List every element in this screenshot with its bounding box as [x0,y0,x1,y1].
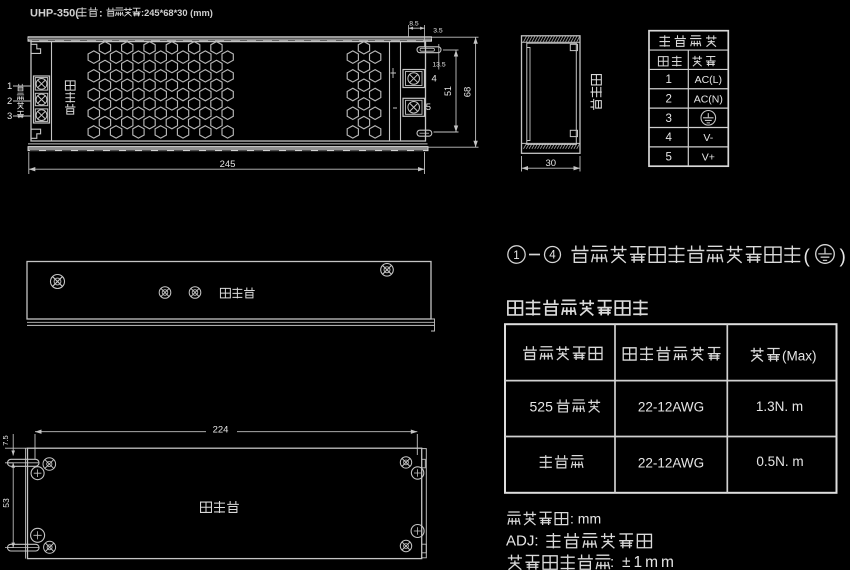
svg-text:2: 2 [7,96,12,107]
svg-text:V+: V+ [702,152,715,164]
svg-text:30: 30 [546,158,557,169]
svg-text:3.5: 3.5 [433,28,443,35]
svg-text:4: 4 [549,250,556,262]
svg-text:5: 5 [426,102,431,113]
svg-text:0.5N. m: 0.5N. m [756,454,803,469]
svg-text:68: 68 [463,87,474,98]
svg-text:UHP-350(: UHP-350( [30,8,79,20]
svg-text:245: 245 [220,159,236,170]
svg-text:3: 3 [7,111,12,122]
svg-text:1: 1 [665,74,671,86]
svg-text:53: 53 [1,498,11,508]
svg-text::: : [99,8,103,20]
svg-text:525: 525 [530,399,554,415]
svg-text:2: 2 [665,93,671,105]
svg-text:224: 224 [213,425,229,436]
svg-text:3: 3 [665,113,671,125]
svg-text:4: 4 [432,74,437,85]
svg-text:1: 1 [513,250,519,262]
svg-text:AC(L): AC(L) [695,74,722,86]
svg-text::245*68*30 (mm): :245*68*30 (mm) [141,8,213,18]
svg-text:13.5: 13.5 [432,62,445,69]
svg-text:(: ( [804,247,811,268]
svg-text:4: 4 [665,132,672,144]
svg-text:): ) [840,247,846,268]
svg-text:1.3N. m: 1.3N. m [756,399,803,414]
svg-text:22-12AWG: 22-12AWG [638,400,704,415]
svg-text:51: 51 [443,86,453,96]
svg-text:ADJ:: ADJ: [506,533,539,550]
svg-text:AC(N): AC(N) [694,93,723,105]
svg-text::: : [610,554,614,570]
svg-text:5: 5 [665,152,671,164]
svg-text:(Max): (Max) [782,349,817,364]
svg-text:1: 1 [7,81,12,92]
svg-text:8.5: 8.5 [409,21,419,28]
svg-text:22-12AWG: 22-12AWG [638,456,704,471]
svg-text:V-: V- [703,132,713,144]
svg-text:7.5: 7.5 [1,435,10,445]
svg-text:±1mm: ±1mm [622,554,677,570]
svg-text:: mm: : mm [570,511,601,527]
